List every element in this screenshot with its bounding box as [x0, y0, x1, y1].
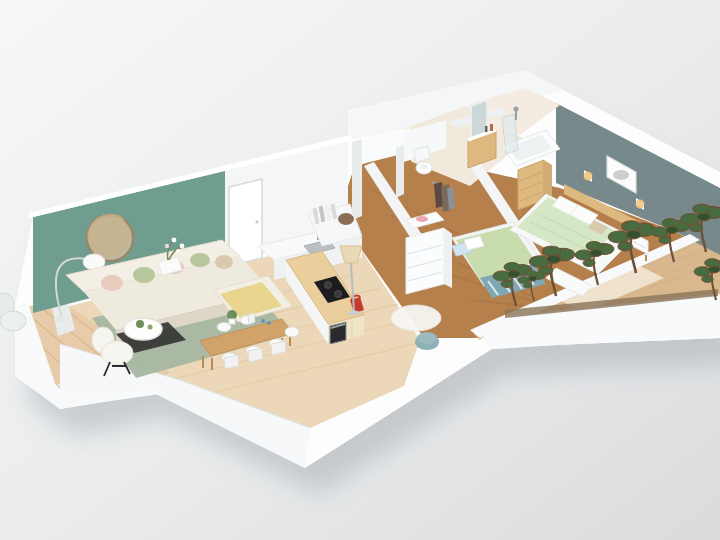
vanity-mirror: [471, 100, 487, 138]
table-jar: [248, 313, 255, 324]
pillow: [190, 253, 210, 267]
door-handle: [255, 220, 258, 223]
shelf-bag: [338, 213, 354, 225]
wardrobe: [406, 228, 452, 294]
table-plant: [136, 320, 144, 328]
pillow: [101, 275, 123, 291]
floorplan-canvas: [0, 0, 720, 540]
pillow: [133, 267, 155, 283]
pink-cloth: [416, 216, 428, 222]
pillow: [215, 255, 233, 269]
floorplan-3d-render: [0, 0, 720, 540]
round-rug: [391, 305, 441, 331]
dining-chair-end: [285, 327, 299, 337]
